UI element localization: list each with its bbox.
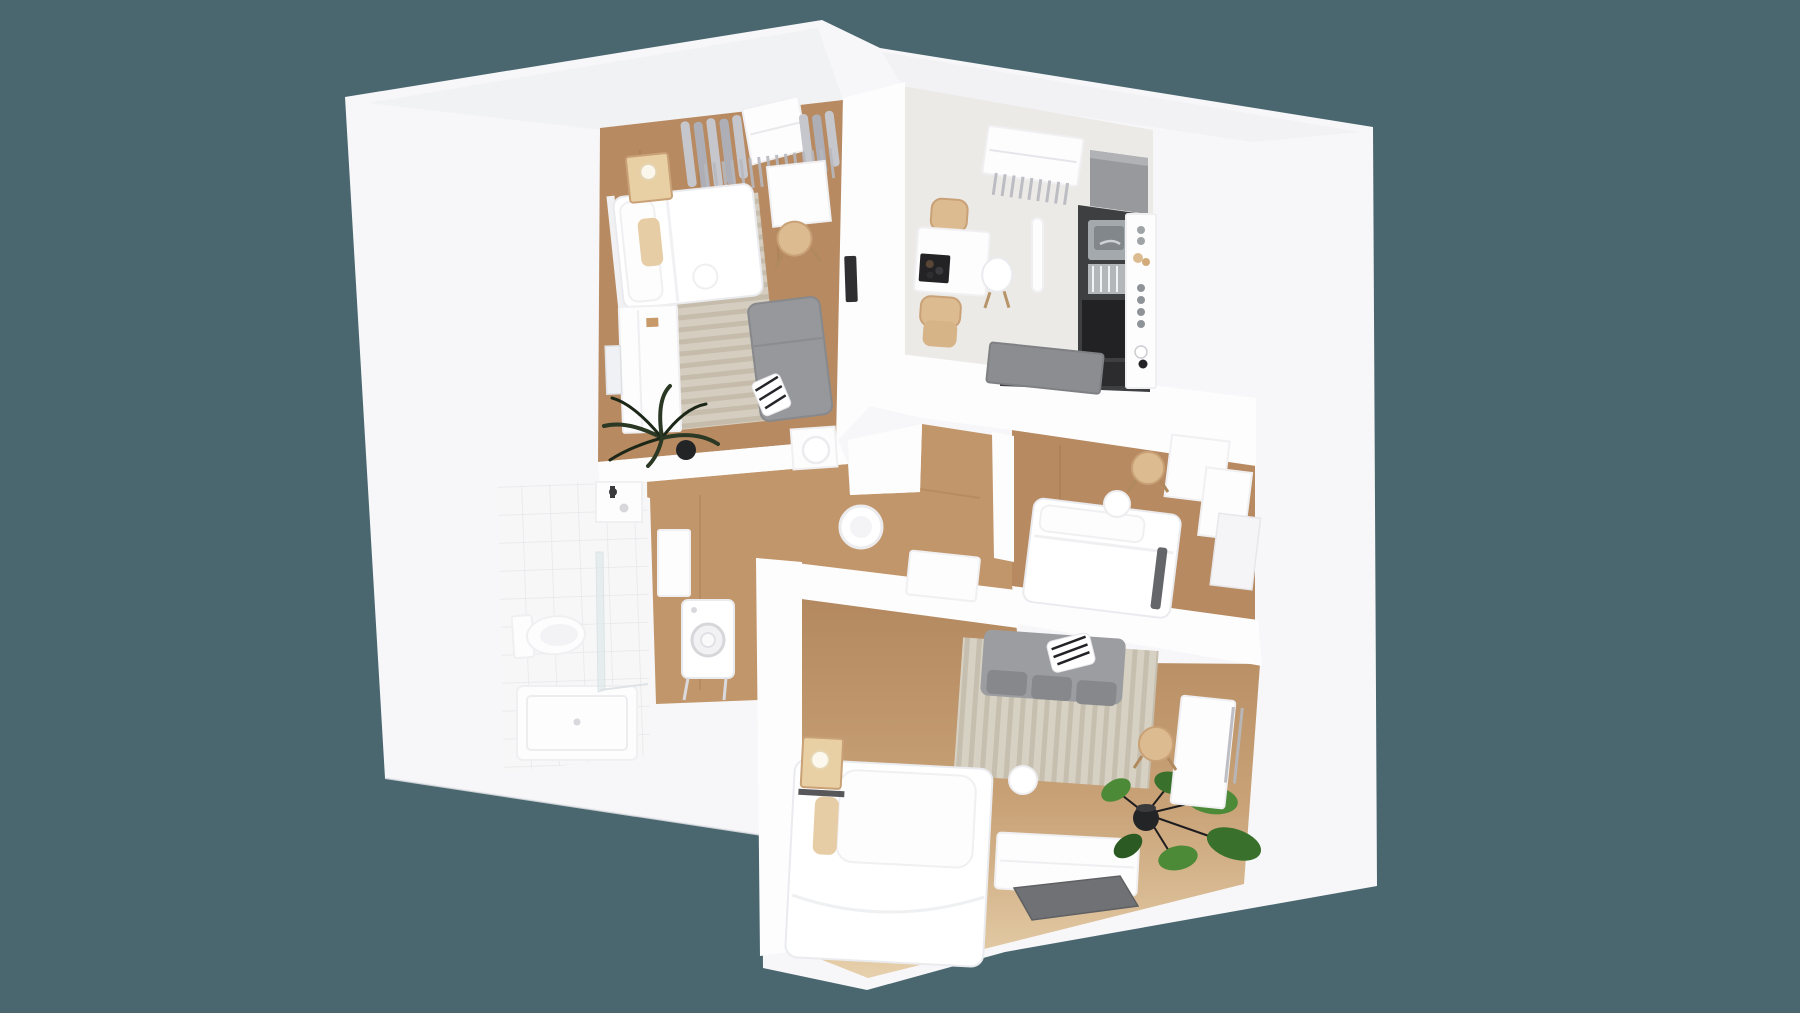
wall-light-pill (1032, 218, 1043, 292)
hall-sideboard (906, 550, 980, 601)
floor-plan-stage (0, 0, 1800, 1013)
spice-shelf (1126, 214, 1156, 388)
living-nightstand (798, 737, 847, 797)
ceiling-lamp (840, 506, 882, 548)
shower-glass-screen (596, 552, 605, 692)
dining-chair-bottom-seat (922, 320, 958, 348)
dining-chair-top (930, 198, 968, 232)
bedroom1-nightstand (626, 153, 673, 203)
sofa-cushion (986, 670, 1028, 697)
bedside-lamp (640, 163, 658, 181)
basin-cabinet (596, 482, 642, 522)
tan-pillow (812, 796, 839, 855)
round-side-table (1104, 491, 1130, 517)
round-side-table (1009, 766, 1037, 794)
hall-sideboard-top (906, 550, 980, 601)
shower-drain (574, 719, 581, 726)
basin-drain (620, 504, 629, 513)
desk-chair (1132, 452, 1164, 484)
sofa-cushion (1031, 675, 1073, 702)
wall-mirror (605, 346, 622, 394)
floor-plan-render (0, 0, 1800, 1013)
kitchen-sink (1088, 220, 1130, 294)
wall-hall-bedroom2 (992, 432, 1014, 562)
plant-pot-rim (1136, 804, 1156, 812)
serving-board (919, 253, 951, 283)
wall-cabinet (658, 530, 690, 596)
desk (767, 161, 831, 227)
washer-knob (691, 607, 697, 613)
side-panel (1210, 513, 1260, 590)
bedroom1-dresser (619, 305, 681, 433)
bedside-lamp (811, 750, 830, 769)
desk-chair (1139, 727, 1173, 761)
round-stool (803, 437, 829, 463)
lamp-inner (850, 516, 872, 538)
sink-basin (1094, 226, 1124, 250)
bedroom2-bed (1022, 498, 1182, 619)
wash-basin (596, 482, 642, 522)
wall-panel-dark (844, 256, 858, 302)
bed-pillow (836, 769, 977, 868)
washer-door-glass (701, 633, 715, 647)
sofa-cushion (1076, 680, 1118, 707)
faucet-head (609, 488, 617, 496)
palm-pot (676, 440, 696, 460)
dresser-decor (646, 318, 658, 327)
